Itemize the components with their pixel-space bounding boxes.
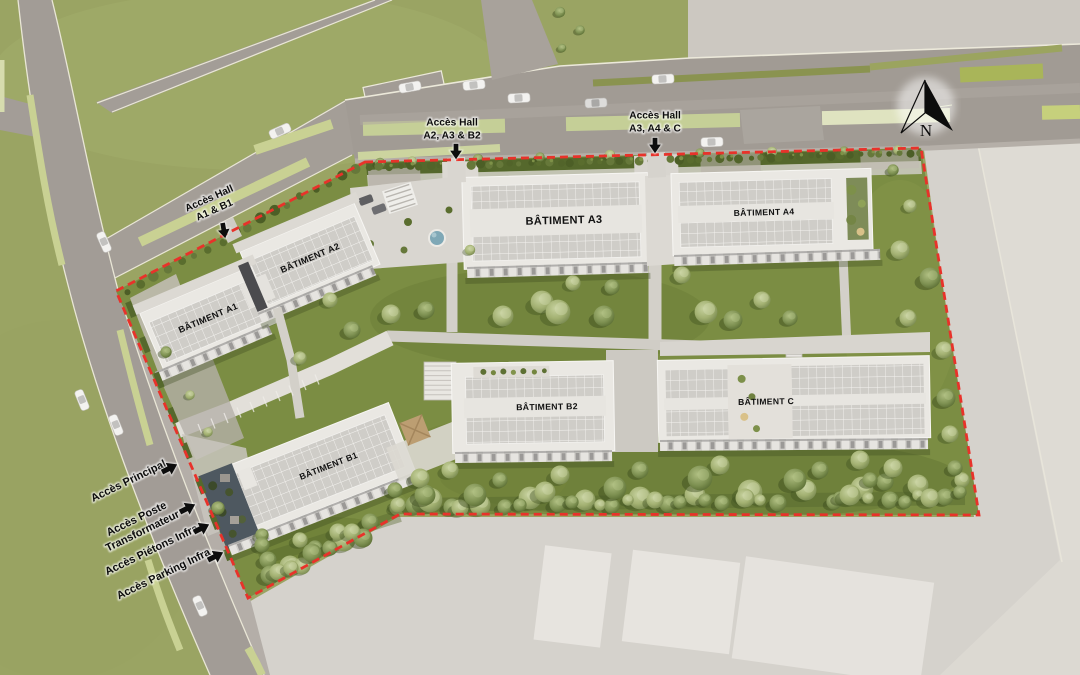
- svg-text:BÂTIMENT A3: BÂTIMENT A3: [525, 213, 602, 228]
- svg-text:BÂTIMENT B2: BÂTIMENT B2: [516, 400, 578, 412]
- svg-text:BÂTIMENT A4: BÂTIMENT A4: [733, 205, 794, 218]
- svg-text:BÂTIMENT C: BÂTIMENT C: [738, 395, 794, 407]
- svg-text:Accès HallA2, A3 & B2: Accès HallA2, A3 & B2: [423, 118, 481, 142]
- svg-text:N: N: [920, 121, 932, 140]
- svg-text:Accès HallA3, A4 & C: Accès HallA3, A4 & C: [629, 111, 681, 135]
